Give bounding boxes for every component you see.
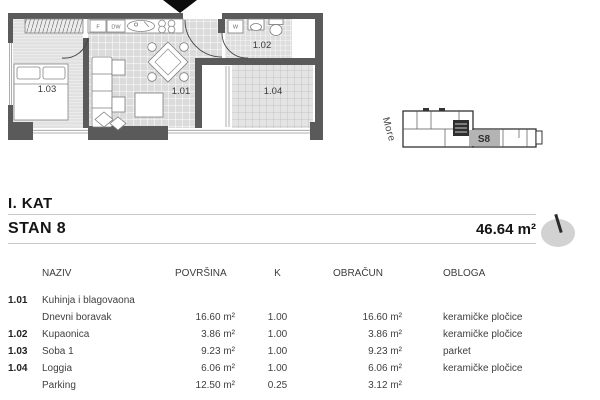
room-finish: keramičke pločice <box>402 309 592 326</box>
row-code: 1.03 <box>8 343 42 360</box>
room-table: NAZIV POVRŠINA K OBRAČUN OBLOGA 1.01 Kuh… <box>8 267 592 394</box>
room-name: Kuhinja i blagovaona <box>42 292 165 309</box>
unit-highlight-label: S8 <box>478 134 491 145</box>
room-k: 1.00 <box>235 309 320 326</box>
room-calc: 16.60 m² <box>320 309 402 326</box>
room-calc: 3.12 m² <box>320 377 402 394</box>
room-name: Parking <box>42 377 165 394</box>
dining-chair <box>148 43 157 52</box>
room-calc <box>320 292 402 309</box>
room-finish: parket <box>402 343 592 360</box>
apartment-datasheet: F DW W 1.01 1.02 1. <box>0 0 600 400</box>
dining-chair <box>148 73 157 82</box>
room-finish: keramičke pločice <box>402 360 592 377</box>
room-label-living: 1.01 <box>172 86 191 97</box>
col-header-naziv: NAZIV <box>42 267 165 292</box>
entry-floor <box>195 19 222 58</box>
room-area: 3.86 m² <box>165 326 235 343</box>
col-header-obloga: OBLOGA <box>402 267 592 292</box>
floor-plan: F DW W 1.01 1.02 1. <box>0 0 330 150</box>
room-label-bathroom: 1.02 <box>253 40 272 51</box>
pillow <box>43 67 65 79</box>
col-header-povrsina: POVRŠINA <box>165 267 235 292</box>
col-header-obracun: OBRAČUN <box>320 267 402 292</box>
room-name: Soba 1 <box>42 343 165 360</box>
room-finish: keramičke pločice <box>402 326 592 343</box>
row-code: 1.04 <box>8 360 42 377</box>
divider-top <box>8 214 536 215</box>
room-calc: 3.86 m² <box>320 326 402 343</box>
side-table <box>112 97 125 112</box>
room-calc: 9.23 m² <box>320 343 402 360</box>
room-k: 1.00 <box>235 326 320 343</box>
dining-chair <box>180 43 189 52</box>
divider-bottom <box>8 243 536 244</box>
room-name: Kupaonica <box>42 326 165 343</box>
kitchen-counter <box>88 19 183 33</box>
room-k <box>235 292 320 309</box>
bathroom-shower-area <box>292 19 315 58</box>
room-calc: 6.06 m² <box>320 360 402 377</box>
row-code: 1.02 <box>8 326 42 343</box>
room-finish <box>402 377 592 394</box>
room-area: 9.23 m² <box>165 343 235 360</box>
entrance-arrow-icon <box>163 0 197 13</box>
site-plan: S8 <box>395 103 547 155</box>
room-name: Dnevni boravak <box>42 309 165 326</box>
room-label-bedroom: 1.03 <box>38 84 57 95</box>
kitchen-sink <box>128 21 155 32</box>
room-finish <box>402 292 592 309</box>
total-area: 46.64 m² <box>300 221 536 238</box>
washer-label: W <box>233 25 239 31</box>
dishwasher-label: DW <box>111 25 121 31</box>
row-code <box>8 309 42 326</box>
armchair <box>112 60 125 75</box>
col-header-k: K <box>235 267 320 292</box>
room-area <box>165 292 235 309</box>
room-k: 1.00 <box>235 360 320 377</box>
room-label-loggia: 1.04 <box>264 86 283 97</box>
wardrobe <box>25 19 83 33</box>
room-k: 0.25 <box>235 377 320 394</box>
coffee-table <box>135 93 163 117</box>
room-area: 16.60 m² <box>165 309 235 326</box>
floor-title: I. KAT <box>8 195 53 212</box>
room-name: Loggia <box>42 360 165 377</box>
pillow <box>17 67 40 79</box>
unit-title: STAN 8 <box>8 220 66 238</box>
room-area: 12.50 m² <box>165 377 235 394</box>
toilet-tank <box>269 19 283 25</box>
room-k: 1.00 <box>235 343 320 360</box>
room-area: 6.06 m² <box>165 360 235 377</box>
row-code <box>8 377 42 394</box>
dining-chair <box>180 73 189 82</box>
toilet <box>270 25 282 36</box>
row-code: 1.01 <box>8 292 42 309</box>
